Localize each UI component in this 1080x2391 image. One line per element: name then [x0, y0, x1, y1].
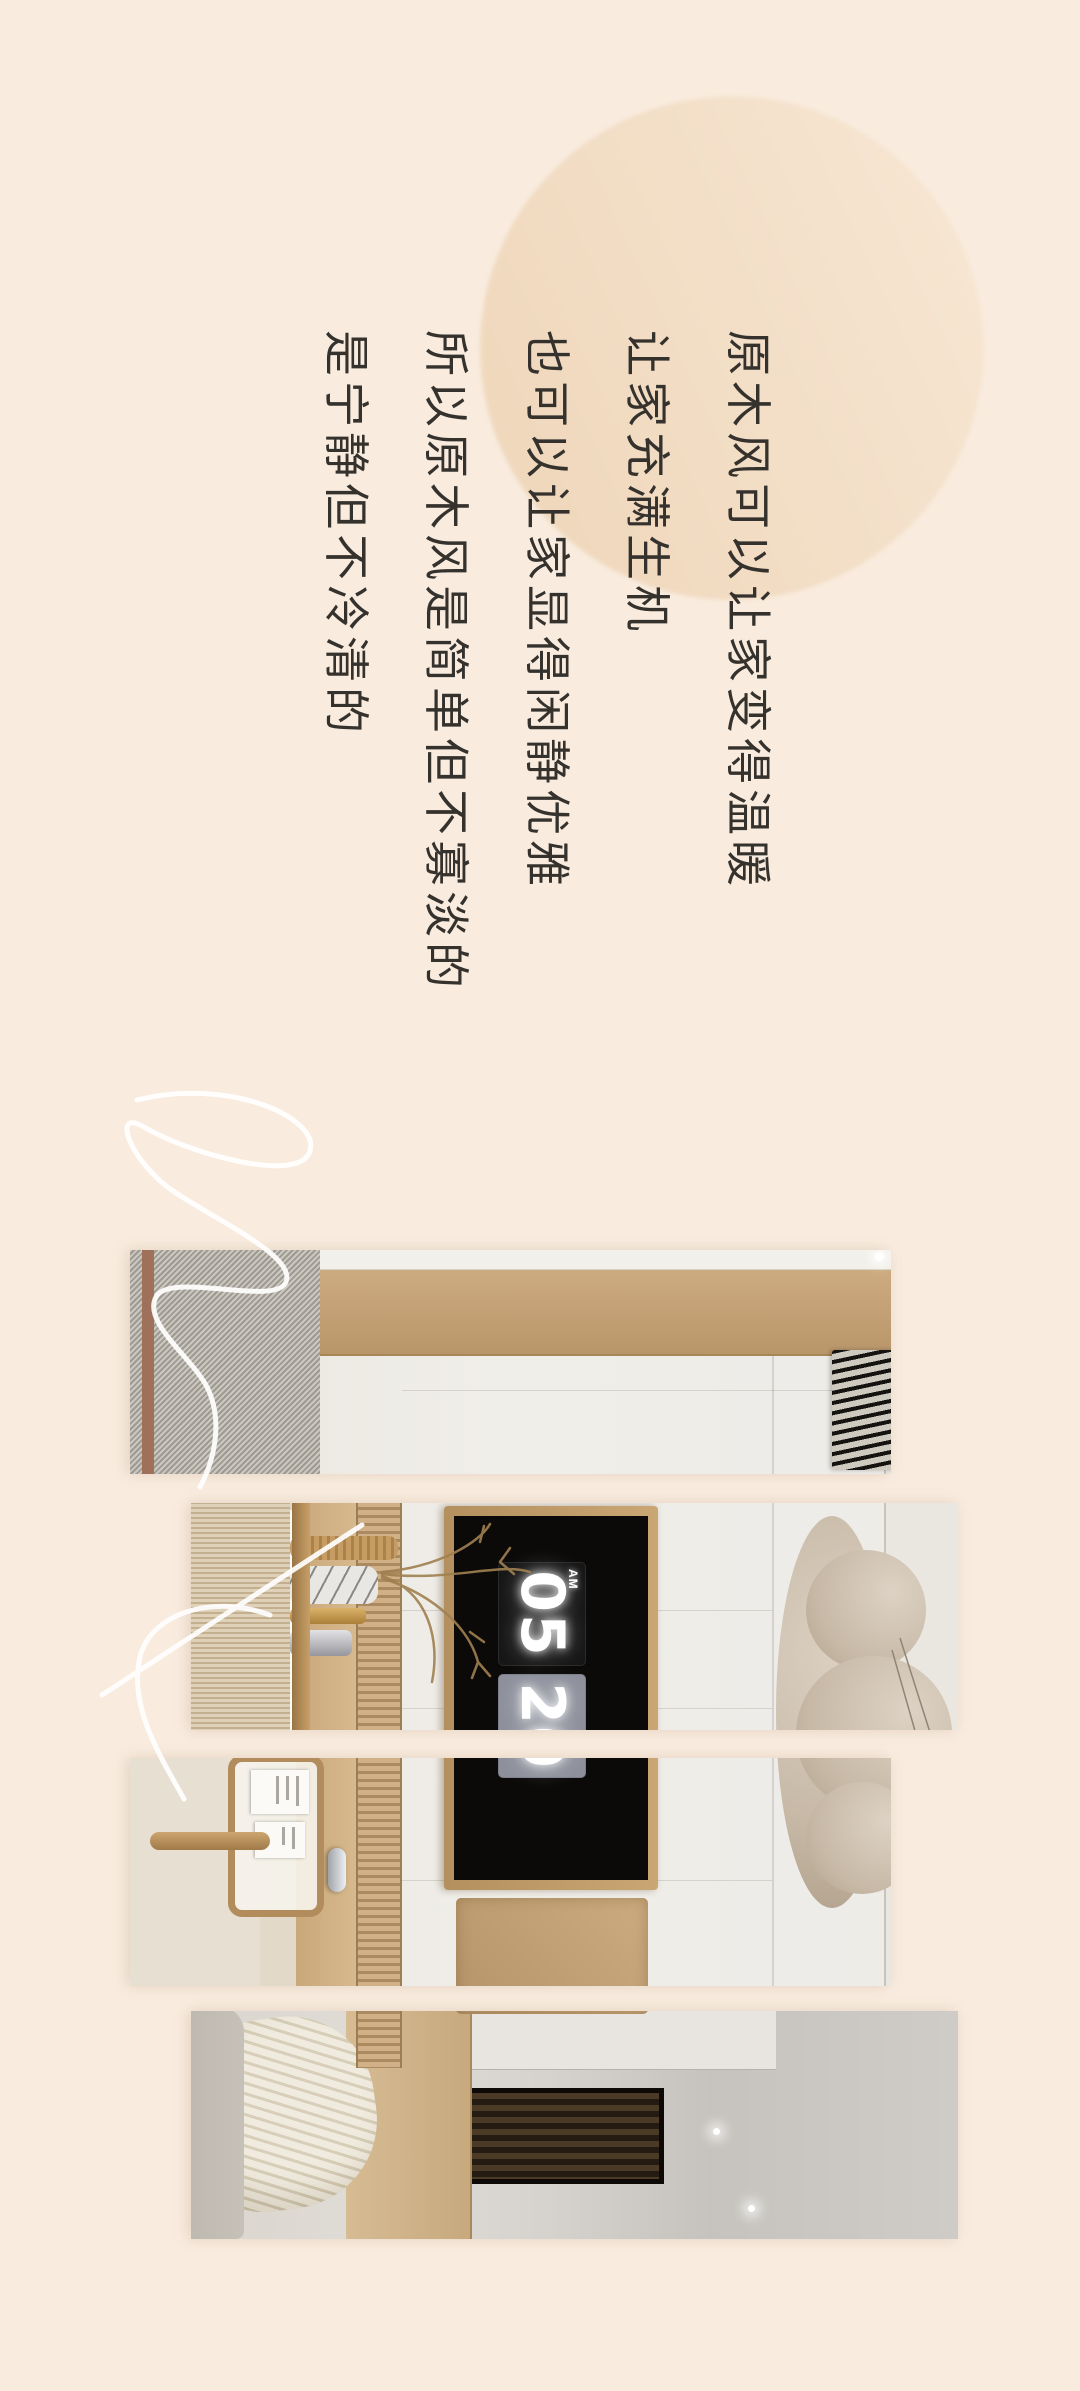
- dried-plant: [380, 1758, 550, 1762]
- headline-line-3: 也可以让家显得闲静优雅: [497, 330, 598, 993]
- photo-slice-4: AM 05 20: [191, 2011, 958, 2239]
- room-right-corner: [191, 2011, 958, 2239]
- lamp-wires: [886, 1758, 891, 1860]
- clock-meridiem-label: AM: [566, 1569, 580, 1590]
- dried-plant: [380, 1512, 550, 1730]
- cloud-pendant-lamp: [768, 1758, 891, 1916]
- spotlight-icon: [713, 2128, 720, 2135]
- headline-text-block: 原木风可以让家变得温暖 让家充满生机 也可以让家显得闲静优雅 所以原木风是简单但…: [296, 330, 799, 993]
- clock-niche-frame: AM 05 20: [444, 1758, 658, 1890]
- fluted-wood-band: [356, 2011, 402, 2068]
- lamp-wires: [886, 1630, 958, 1730]
- rotated-canvas: 原木风可以让家变得温暖 让家充满生机 也可以让家显得闲静优雅 所以原木风是简单但…: [0, 0, 1080, 2391]
- headline-line-5: 是宁静但不冷清的: [296, 330, 397, 993]
- headline-line-1: 原木风可以让家变得温暖: [698, 330, 799, 993]
- suede-wall-panel: [456, 1898, 648, 1986]
- glass-handle: [328, 1848, 346, 1892]
- wall-seam: [402, 1390, 884, 1391]
- handwritten-signature-overlay: [82, 1055, 392, 1845]
- headline-line-2: 让家充满生机: [597, 330, 698, 993]
- bedroom-scene: AM 05 20: [191, 2011, 958, 2239]
- ac-vent-grille-icon: [832, 1350, 891, 1470]
- spotlight-icon: [748, 2205, 755, 2212]
- poster: 原木风可以让家变得温暖 让家充满生机 也可以让家显得闲静优雅 所以原木风是简单但…: [0, 0, 1080, 2391]
- gray-blanket: [191, 2011, 244, 2239]
- headline-line-4: 所以原木风是简单但不寡淡的: [396, 330, 497, 993]
- suede-wall-panel: [456, 2011, 648, 2014]
- clock-niche-black-recess: AM 05 20: [454, 1758, 648, 1880]
- spotlight-icon: [875, 1252, 884, 1261]
- wall-seam: [772, 1356, 774, 1474]
